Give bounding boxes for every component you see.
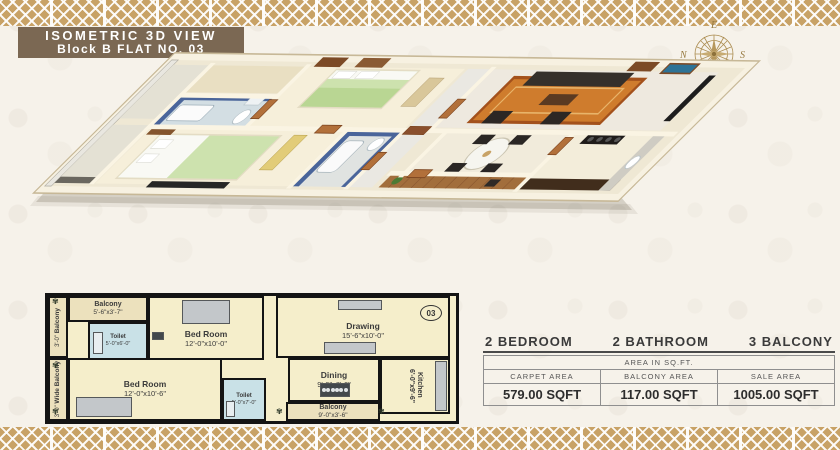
plan-room-bedroom-2: Bed Room 12'-0"x10'-6" [68, 358, 222, 421]
unit-configuration: 2 BEDROOM 2 BATHROOM 3 BALCONY [483, 334, 835, 353]
plan-room-drawing: Drawing 15'-6"x10'-0" [276, 296, 450, 358]
balcony-count: 3 BALCONY [749, 334, 833, 349]
floor-plan-2d: 3'-0" Balcony 3'-0" Wide Balcony ✾ ✾ ✾ B… [45, 293, 459, 424]
carpet-area-header: CARPET AREA [484, 370, 601, 384]
plan-room-balcony-bottom: Balcony 9'-0"x3'-6" [286, 402, 380, 421]
carpet-area-value: 579.00 SQFT [484, 384, 601, 406]
sale-area-header: SALE AREA [718, 370, 835, 384]
bathroom-count: 2 BATHROOM [613, 334, 709, 349]
plan-room-kitchen: Kitchen 6'-0"x9'-6" [380, 358, 450, 414]
plan-room-balcony-top: Balcony 5'-6"x3'-7" [68, 296, 148, 322]
area-table: AREA IN SQ.FT. CARPET AREA BALCONY AREA … [483, 355, 835, 406]
bedroom-count: 2 BEDROOM [485, 334, 573, 349]
plan-room-toilet-2: Toilet 5'-0"x7'-0" [222, 378, 266, 421]
sale-area-value: 1005.00 SQFT [718, 384, 835, 406]
unit-number-badge: 03 [420, 305, 442, 321]
compass-east-label: E [710, 20, 717, 31]
area-summary: 2 BEDROOM 2 BATHROOM 3 BALCONY AREA IN S… [483, 334, 835, 406]
plant-icon: ✾ [52, 362, 59, 370]
balcony-area-value: 117.00 SQFT [601, 384, 718, 406]
plant-icon: ✾ [276, 408, 283, 416]
bottom-pattern-border [0, 427, 840, 450]
plan-room-toilet-1: Toilet 5'-0"x6'-0" [88, 322, 148, 360]
balcony-area-header: BALCONY AREA [601, 370, 718, 384]
plant-icon: ✾ [52, 408, 59, 416]
area-table-caption: AREA IN SQ.FT. [484, 356, 835, 370]
plant-icon: ✾ [378, 408, 385, 416]
plant-icon: ✾ [52, 298, 59, 306]
plan-room-bedroom-1: Bed Room 12'-0"x10'-0" [148, 296, 264, 360]
isometric-3d-floor-plan [30, 48, 790, 230]
plan-room-dining: Dining 9'-0"x8'-0" [288, 358, 380, 402]
brochure-page: { "header": { "title_line1": "ISOMETRIC … [0, 0, 840, 450]
page-title: ISOMETRIC 3D VIEW [18, 29, 244, 43]
